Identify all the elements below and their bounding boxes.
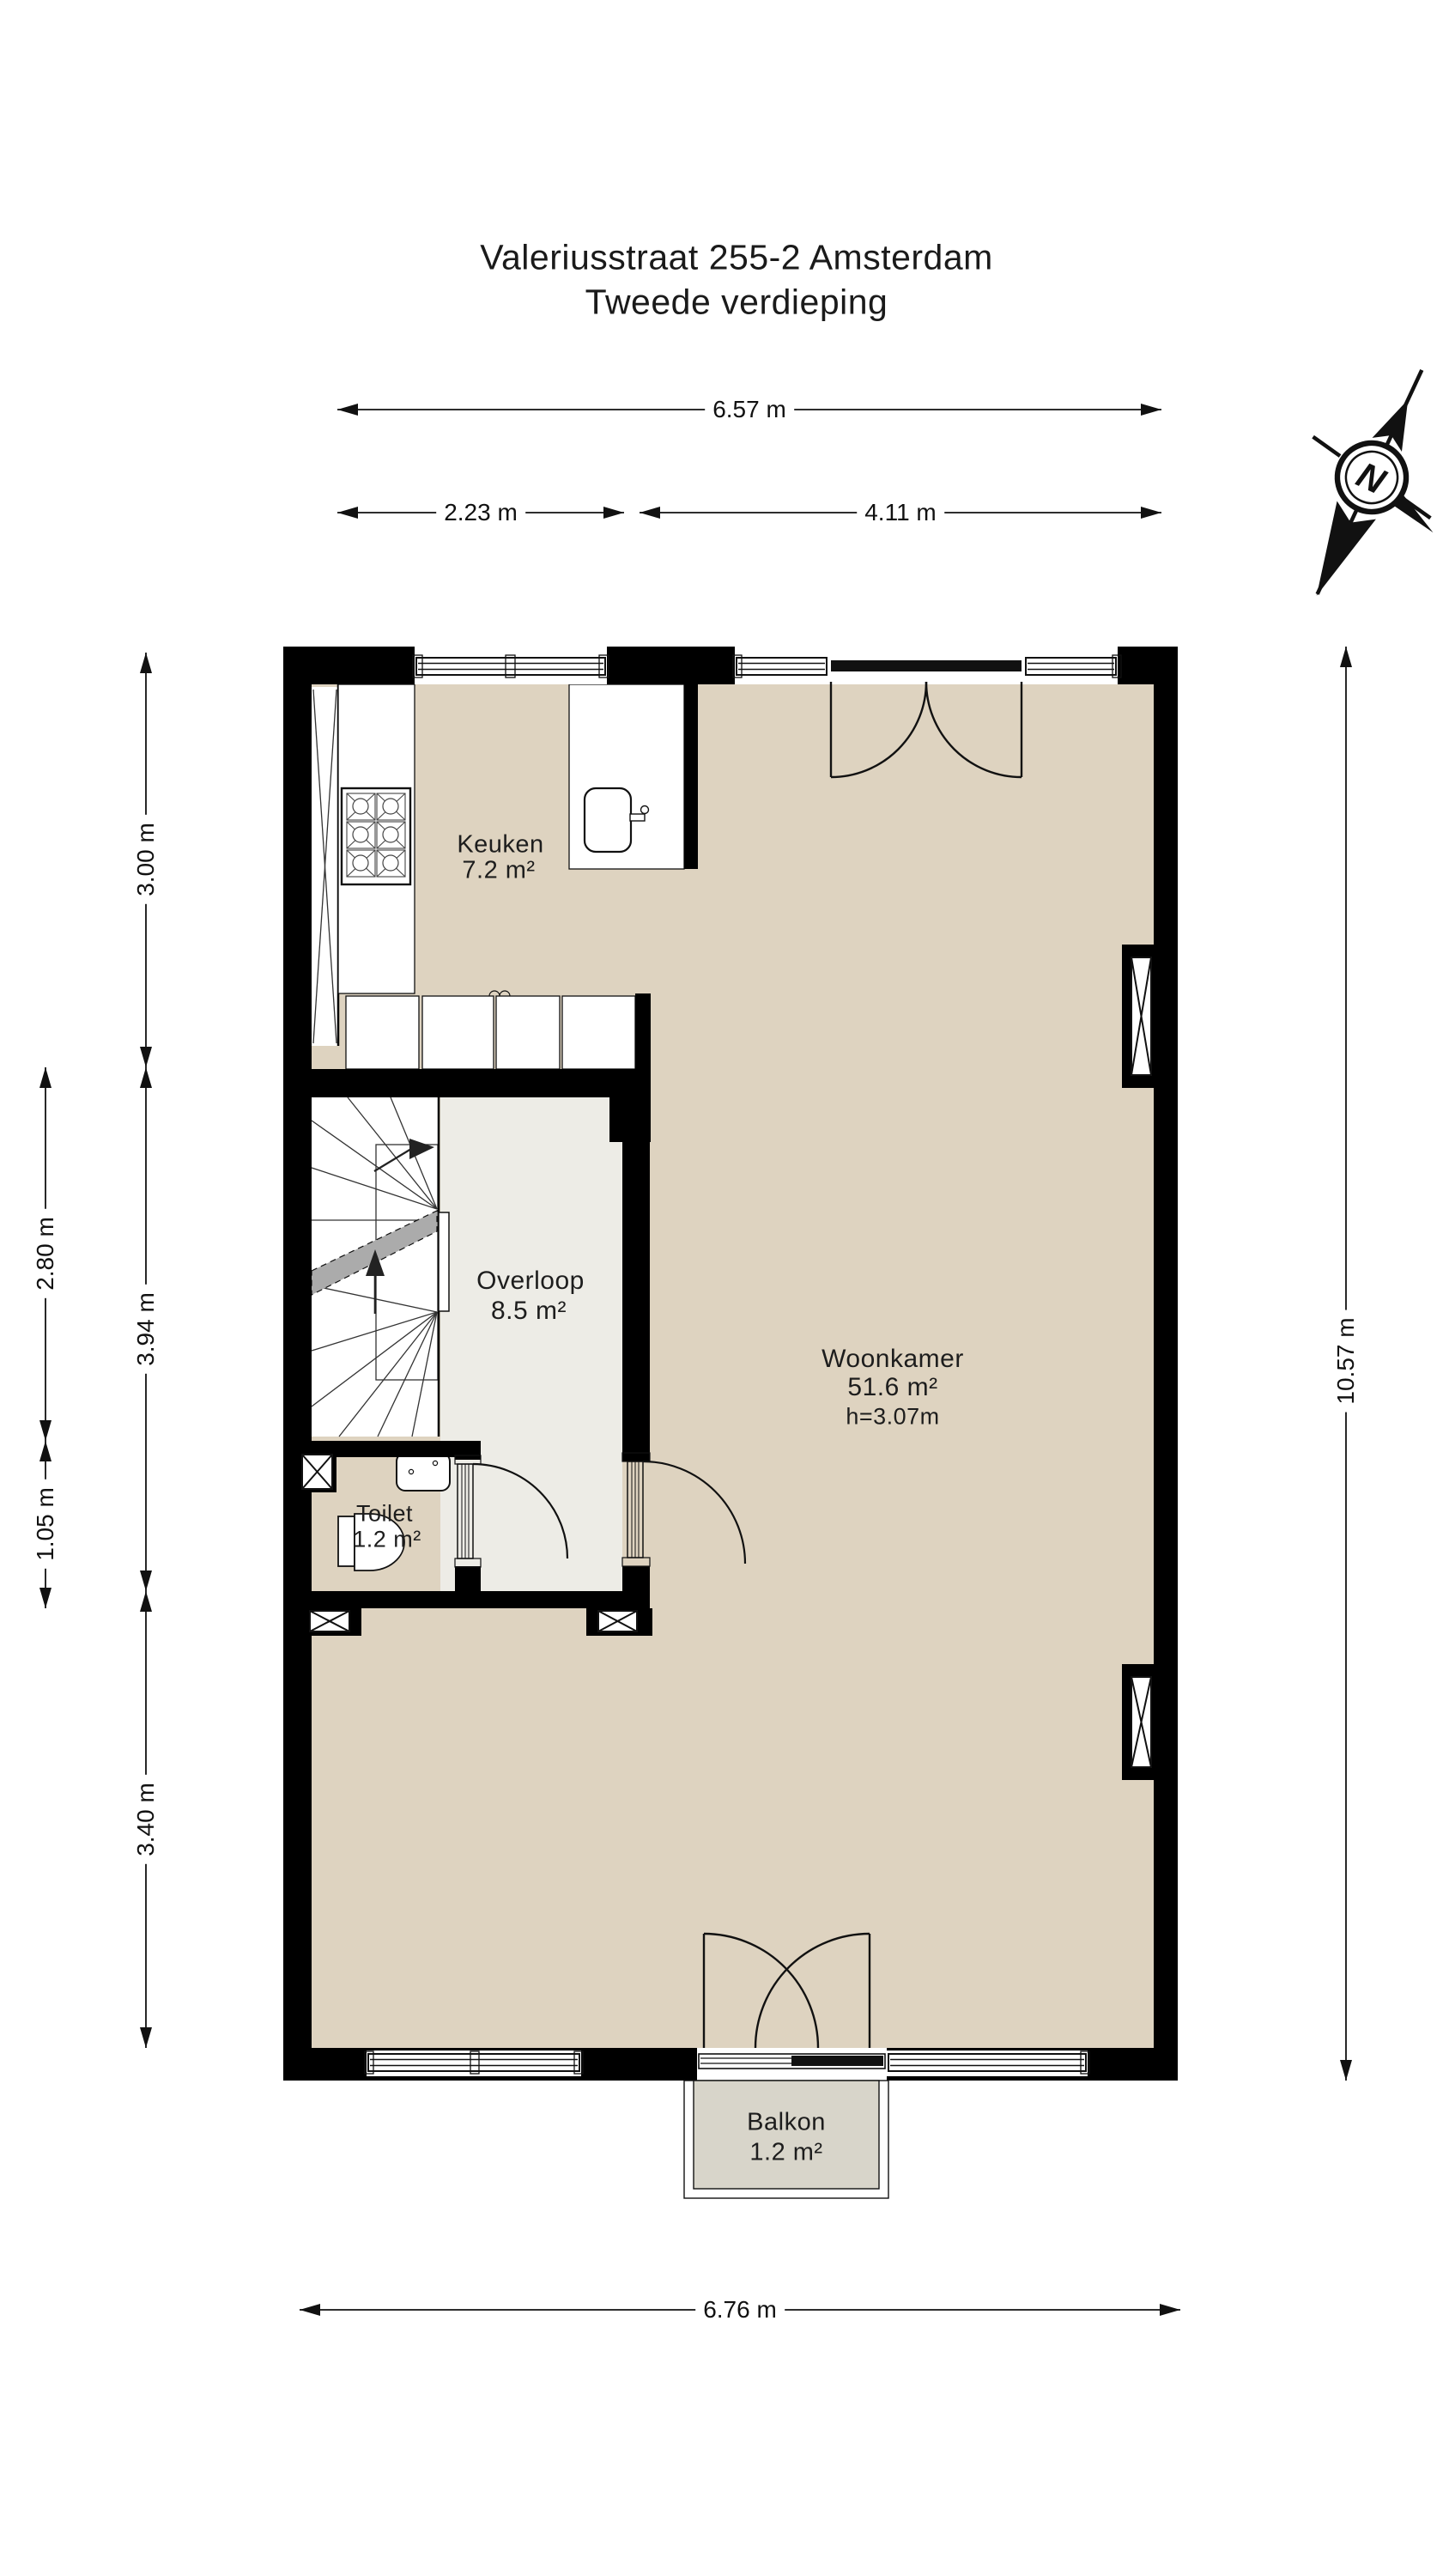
dim-left-lower: 3.40 m xyxy=(132,1775,160,1864)
room-label-toilet: Toilet xyxy=(356,1501,413,1528)
floor-plan-canvas xyxy=(0,0,1449,2576)
windows-bottom xyxy=(365,2048,1089,2081)
room-area-balkon: 1.2 m² xyxy=(749,2139,822,2167)
dim-right-total: 10.57 m xyxy=(1332,1309,1360,1412)
stair-newel xyxy=(439,1212,449,1311)
kitchen-sink-icon xyxy=(569,684,684,869)
room-label-keuken: Keuken xyxy=(457,831,543,860)
dim-left-middle: 3.94 m xyxy=(132,1285,160,1374)
page-title-line2: Tweede verdieping xyxy=(585,283,888,323)
room-label-overloop: Overloop xyxy=(476,1267,585,1296)
room-label-balkon: Balkon xyxy=(747,2109,826,2137)
dim-top-left: 2.23 m xyxy=(436,499,525,526)
dim-top-right: 4.11 m xyxy=(857,499,944,526)
shaft-x-icon xyxy=(310,1611,349,1631)
dim-left-outer-lower: 1.05 m xyxy=(32,1479,59,1569)
stove-icon xyxy=(342,788,410,884)
shaft-x-icon xyxy=(1131,1677,1151,1767)
dim-left-outer-upper: 2.80 m xyxy=(32,1209,59,1298)
toilet-sink-icon xyxy=(397,1453,450,1491)
room-area-woonkamer: 51.6 m² xyxy=(847,1373,937,1402)
shaft-x-icon xyxy=(302,1455,332,1489)
room-height-woonkamer: h=3.07m xyxy=(846,1404,939,1431)
page-title-line1: Valeriusstraat 255-2 Amsterdam xyxy=(480,238,993,278)
windows-top xyxy=(413,647,1121,684)
room-area-overloop: 8.5 m² xyxy=(491,1297,567,1326)
shaft-x-icon xyxy=(598,1611,637,1631)
room-area-keuken: 7.2 m² xyxy=(462,857,535,885)
room-area-toilet: 1.2 m² xyxy=(353,1527,421,1553)
room-label-woonkamer: Woonkamer xyxy=(822,1345,964,1374)
floorplan-page: Valeriusstraat 255-2 Amsterdam Tweede ve… xyxy=(0,0,1449,2576)
compass-north-icon xyxy=(1252,340,1449,629)
dim-bottom-total: 6.76 m xyxy=(695,2296,785,2324)
dim-left-upper: 3.00 m xyxy=(132,815,160,904)
dim-top-total: 6.57 m xyxy=(705,396,794,423)
kitchen-cabinets xyxy=(346,991,635,1069)
overloop-floor xyxy=(440,1097,622,1591)
kitchen-wall-stub xyxy=(684,684,698,869)
shaft-x-icon xyxy=(1131,957,1151,1075)
